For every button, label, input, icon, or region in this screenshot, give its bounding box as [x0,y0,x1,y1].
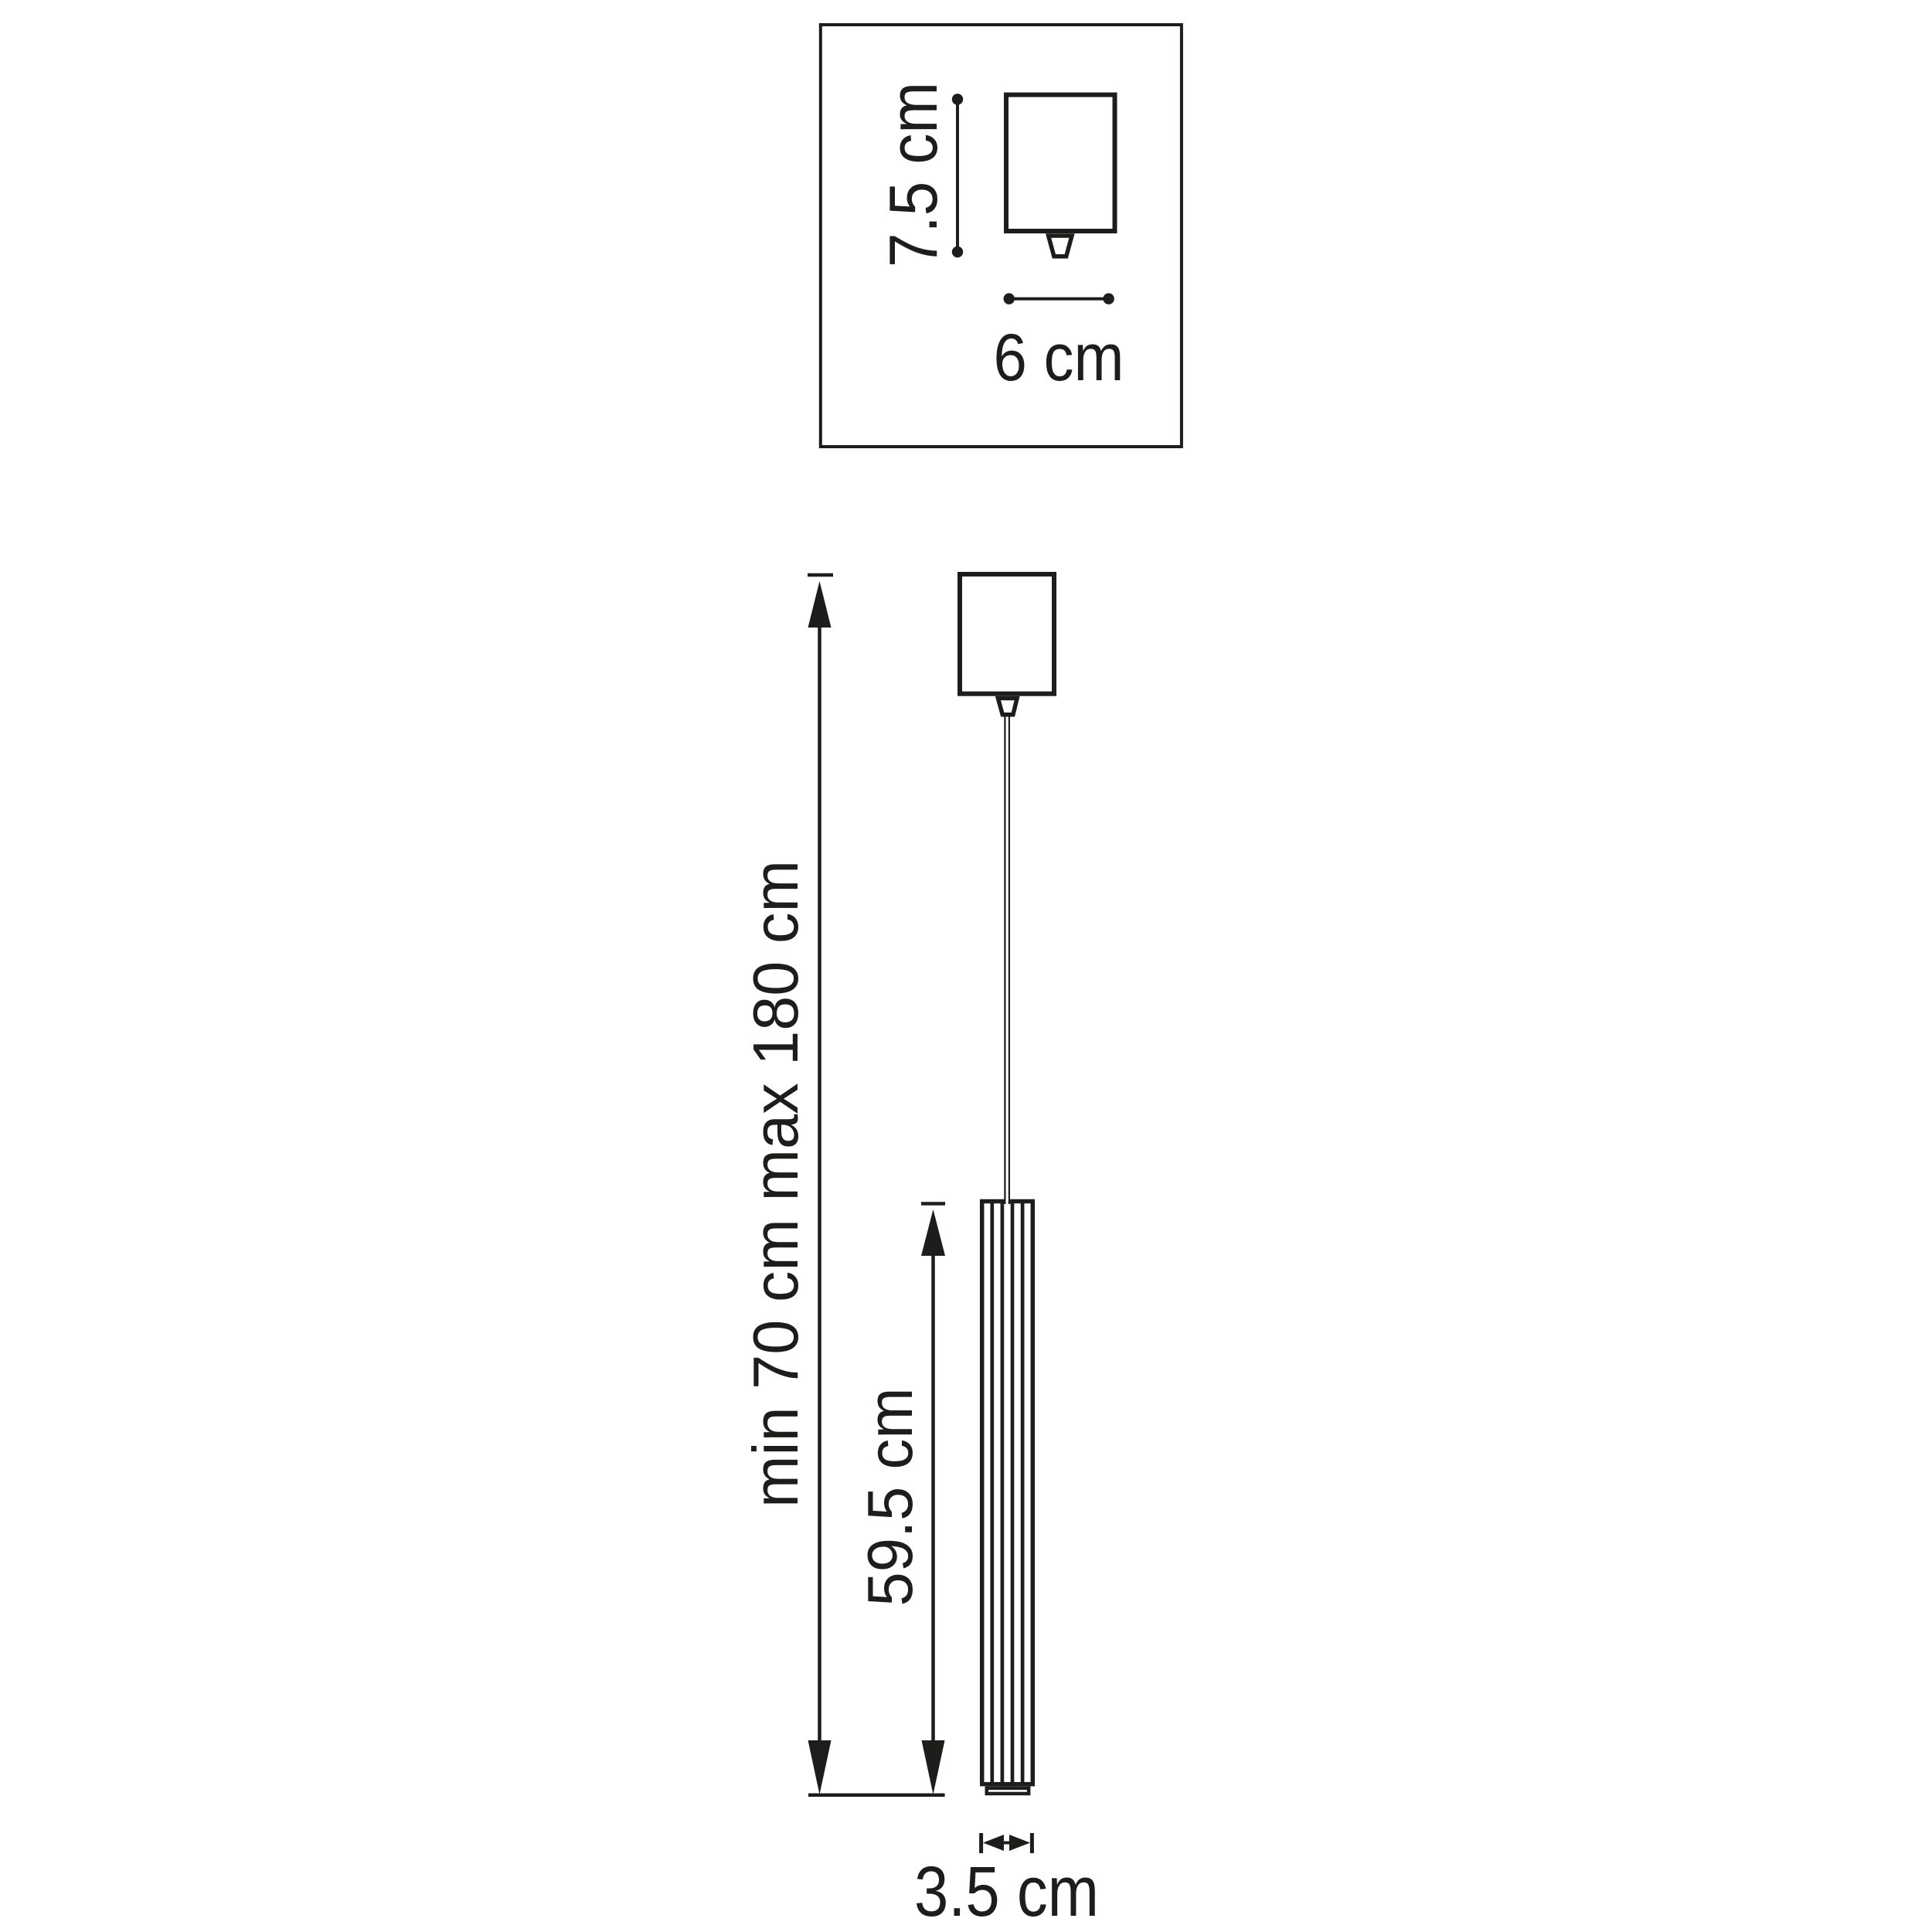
svg-text:59.5 cm: 59.5 cm [854,1388,926,1607]
svg-text:7.5 cm: 7.5 cm [875,82,951,267]
svg-text:min 70 cm max 180 cm: min 70 cm max 180 cm [740,860,811,1508]
svg-text:3.5 cm: 3.5 cm [914,1852,1099,1931]
svg-text:6 cm: 6 cm [994,321,1124,395]
